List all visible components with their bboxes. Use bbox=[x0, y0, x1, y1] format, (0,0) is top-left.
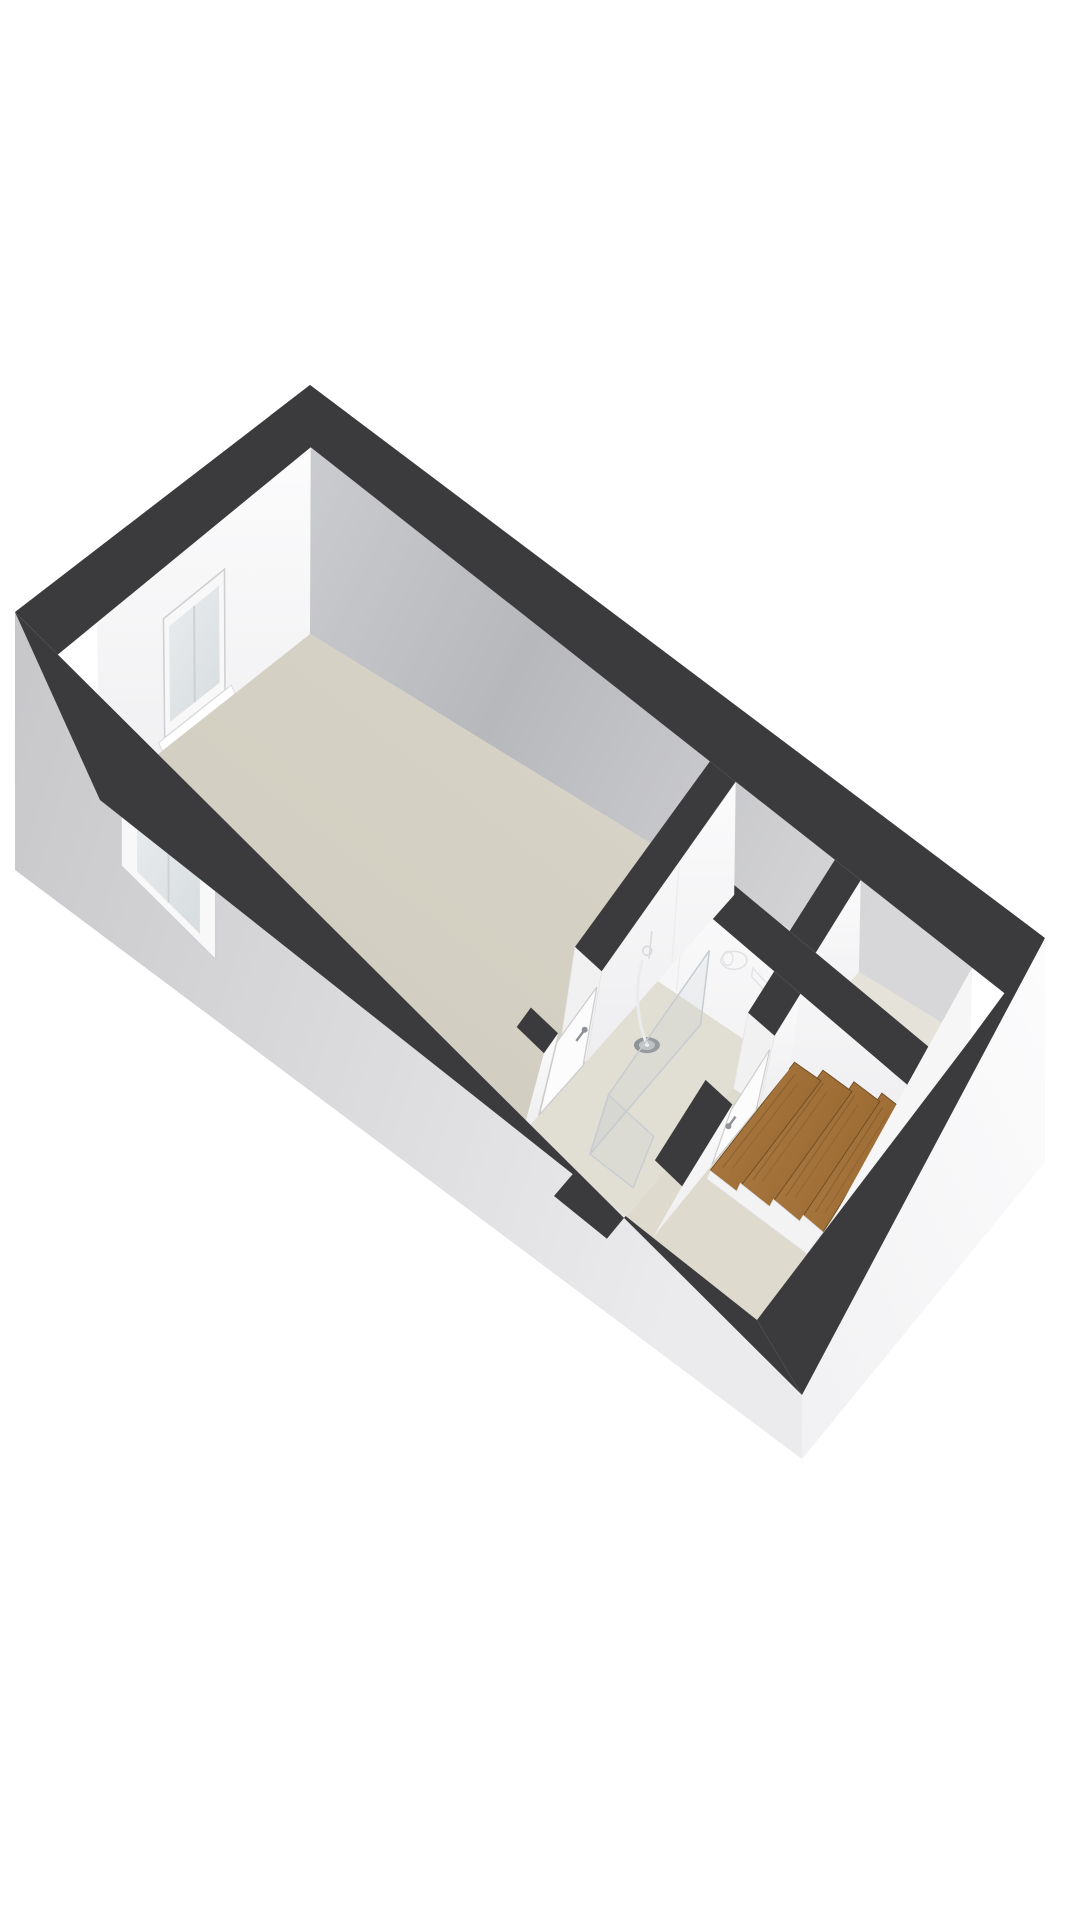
floor-plan-stage: 3D floor plan - studio apartment upper f… bbox=[0, 0, 1080, 1920]
floor-plan-3d: 3D floor plan - studio apartment upper f… bbox=[0, 0, 1080, 1920]
window-mullion bbox=[194, 606, 195, 702]
